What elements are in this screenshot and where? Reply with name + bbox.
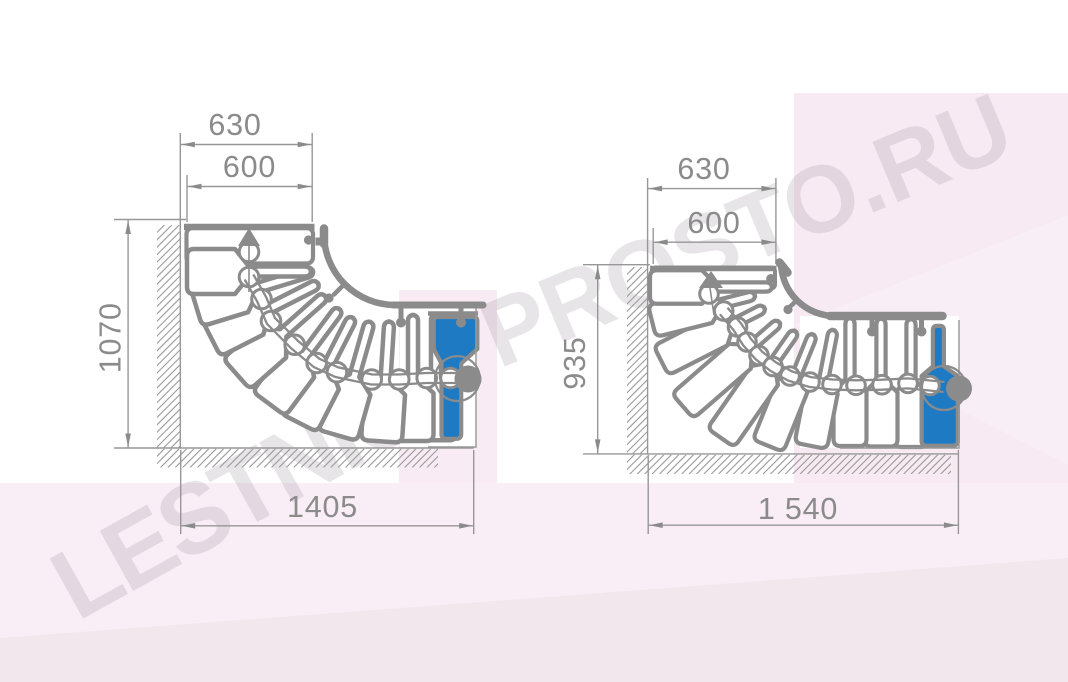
svg-text:1405: 1405	[287, 490, 358, 524]
svg-text:1 540: 1 540	[758, 492, 838, 526]
svg-text:600: 600	[223, 150, 276, 184]
svg-text:600: 600	[687, 206, 740, 240]
svg-text:1070: 1070	[94, 302, 128, 373]
svg-text:630: 630	[208, 108, 261, 142]
svg-text:935: 935	[558, 336, 592, 389]
svg-text:630: 630	[677, 152, 730, 186]
